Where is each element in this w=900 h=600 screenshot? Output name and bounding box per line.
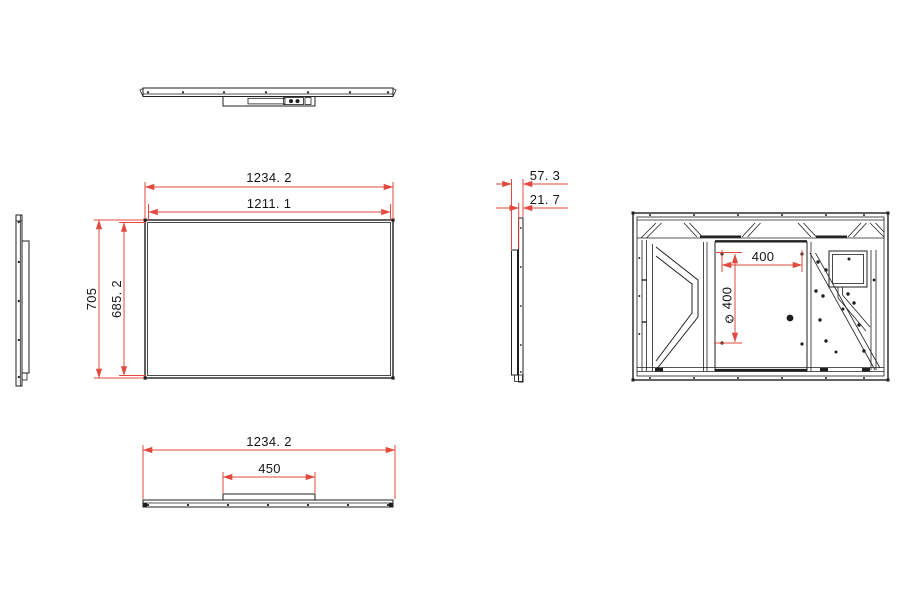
dim-label-front-outer-width: 1234. 2 <box>246 170 291 185</box>
back-top-rail <box>637 220 884 238</box>
bottom-stand-mount <box>223 494 315 500</box>
connector-box <box>829 251 867 287</box>
center-hole <box>787 315 794 322</box>
left-side-back-box <box>22 241 29 373</box>
dim-front-inner-height: 685. 2 <box>109 223 146 376</box>
thumbscrew <box>726 315 733 322</box>
dim-front-inner-width: 1211. 1 <box>149 196 391 221</box>
dim-bottom-stand-width: 450 <box>223 461 315 493</box>
side-panel-profile <box>512 250 518 375</box>
dim-label-vesa-horizontal: 400 <box>752 249 775 264</box>
technical-drawing: 1234. 2 1211. 1 705 685. 2 <box>0 0 900 600</box>
dim-side-total-depth: 57. 3 <box>496 168 568 251</box>
back-view: 400 400 <box>632 212 890 382</box>
top-view-screw-holes <box>147 91 389 93</box>
back-left-chevron-panel <box>653 242 708 371</box>
front-view: 1234. 2 1211. 1 705 685. 2 <box>84 170 395 380</box>
dim-vesa-horizontal: 400 <box>716 249 802 272</box>
back-corner-marks <box>632 212 890 382</box>
dim-label-bottom-stand-width: 450 <box>258 461 281 476</box>
top-view-connectors <box>284 98 312 105</box>
side-view: 57. 3 21. 7 <box>496 168 568 382</box>
dim-label-front-outer-height: 705 <box>84 288 99 311</box>
top-view <box>140 88 396 106</box>
front-corner-marks <box>144 219 395 380</box>
front-outer-frame <box>145 220 393 378</box>
dim-vesa-vertical: 400 <box>714 254 742 343</box>
dim-label-bottom-outer-width: 1234. 2 <box>246 434 291 449</box>
drawing-svg: 1234. 2 1211. 1 705 685. 2 <box>0 0 900 600</box>
side-screw-holes <box>520 227 522 373</box>
dim-label-side-total-depth: 57. 3 <box>530 168 560 183</box>
front-inner-frame <box>148 223 391 376</box>
top-view-recess <box>248 98 285 104</box>
bottom-view-screw-holes <box>147 504 389 506</box>
dim-label-front-inner-height: 685. 2 <box>109 280 124 318</box>
left-side-view <box>16 215 29 386</box>
dim-label-front-inner-width: 1211. 1 <box>247 196 292 211</box>
back-right-section <box>810 242 880 371</box>
dim-label-vesa-vertical: 400 <box>720 287 735 310</box>
left-side-screw-holes <box>18 221 20 378</box>
back-left-rails <box>642 240 647 371</box>
bottom-view: 1234. 2 450 <box>143 434 395 507</box>
back-frame-holes <box>638 214 865 379</box>
dim-label-side-front-depth: 21. 7 <box>530 192 560 207</box>
dim-side-front-depth: 21. 7 <box>496 192 568 249</box>
